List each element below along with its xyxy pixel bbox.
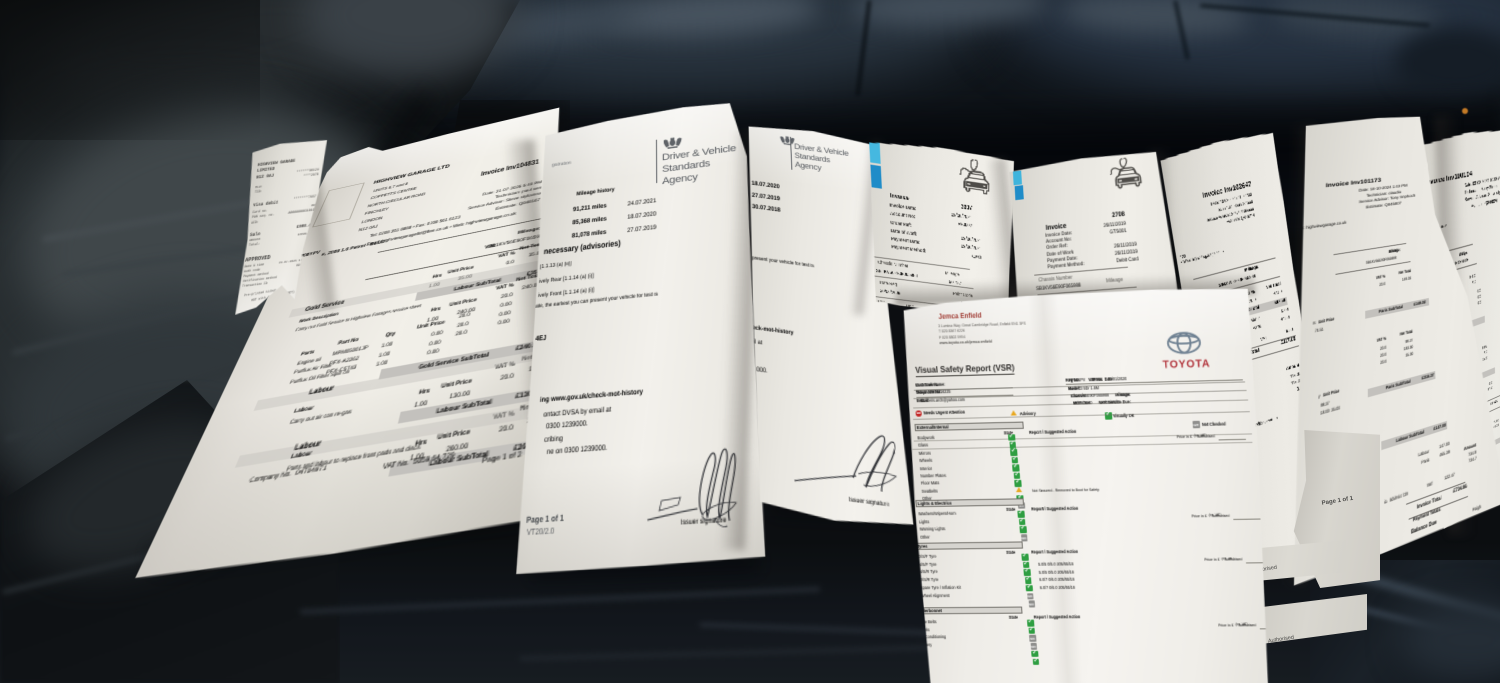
svg-text:TOYOTA: TOYOTA — [1162, 358, 1210, 371]
